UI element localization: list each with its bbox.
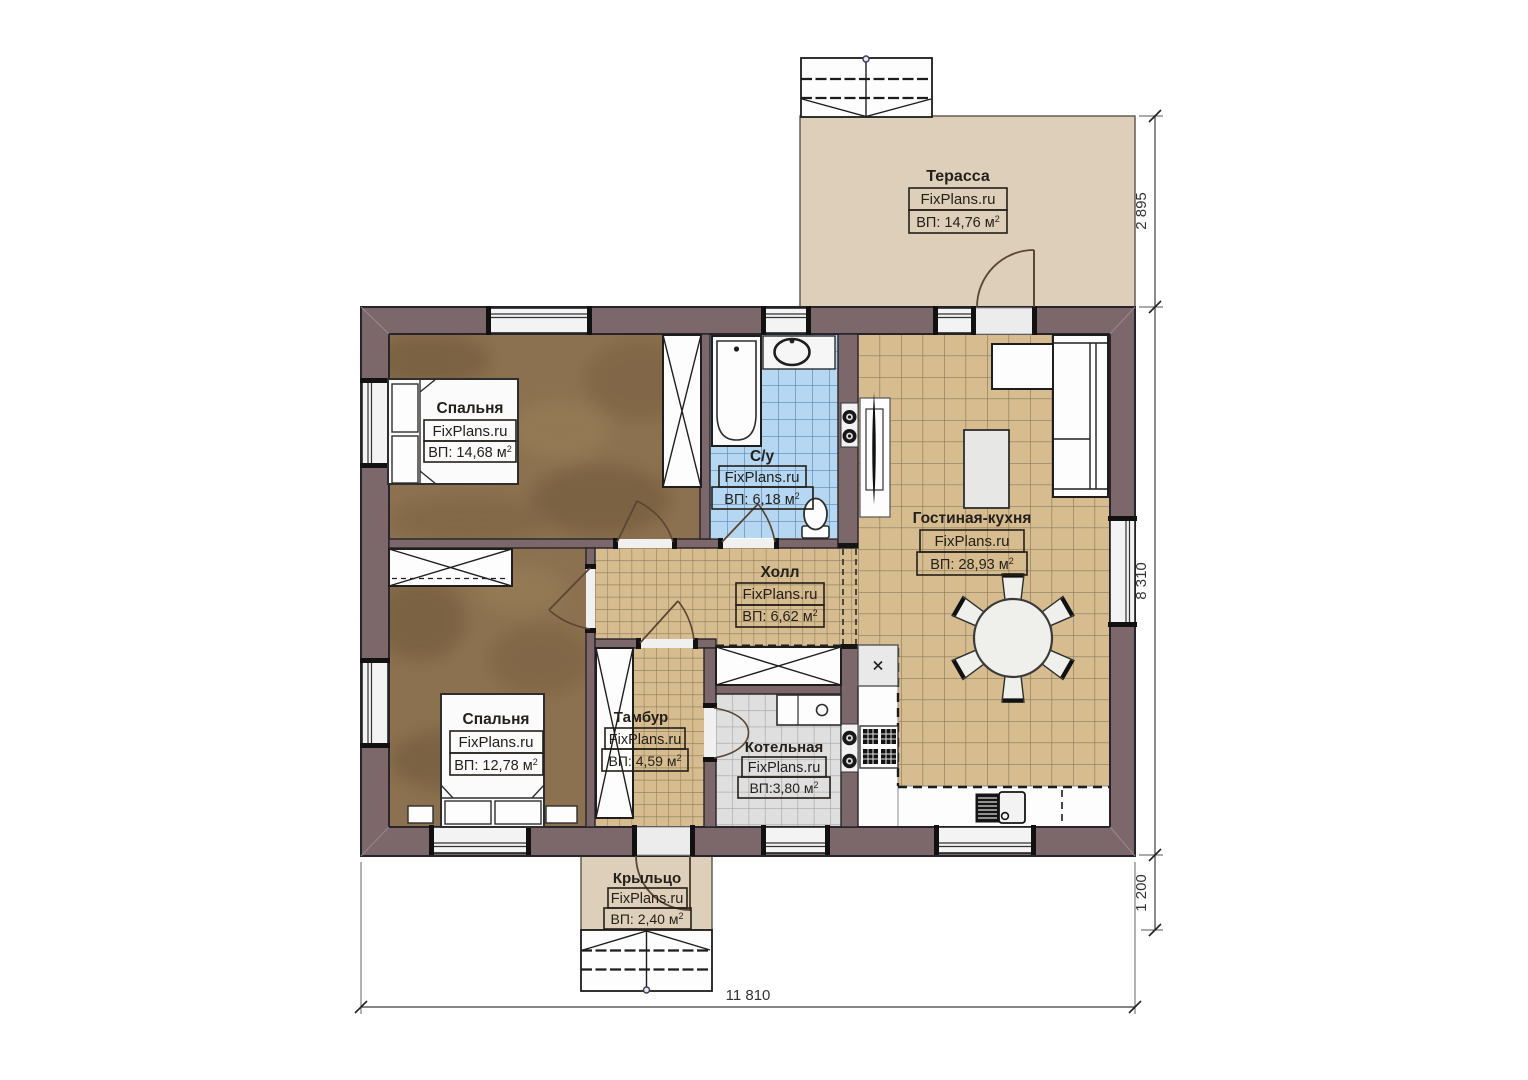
svg-text:2 895: 2 895 xyxy=(1133,192,1150,230)
svg-text:8 310: 8 310 xyxy=(1133,562,1150,600)
svg-text:С/у: С/у xyxy=(750,448,775,465)
svg-text:Спальня: Спальня xyxy=(463,711,530,728)
svg-text:Котельная: Котельная xyxy=(745,739,824,756)
svg-text:FixPlans.ru: FixPlans.ru xyxy=(934,533,1009,550)
svg-text:FixPlans.ru: FixPlans.ru xyxy=(748,760,821,776)
svg-text:ВП: 6,62 м2: ВП: 6,62 м2 xyxy=(742,608,817,625)
svg-text:ВП: 6,18 м2: ВП: 6,18 м2 xyxy=(724,491,799,508)
svg-text:ВП: 12,78 м2: ВП: 12,78 м2 xyxy=(454,757,537,774)
svg-text:Холл: Холл xyxy=(761,564,800,581)
svg-text:ВП: 4,59 м2: ВП: 4,59 м2 xyxy=(609,753,682,769)
svg-text:FixPlans.ru: FixPlans.ru xyxy=(724,469,799,486)
svg-text:Спальня: Спальня xyxy=(437,400,504,417)
svg-text:FixPlans.ru: FixPlans.ru xyxy=(432,423,507,440)
svg-text:ВП: 14,76 м2: ВП: 14,76 м2 xyxy=(916,214,999,231)
svg-text:FixPlans.ru: FixPlans.ru xyxy=(458,734,533,751)
svg-text:1 200: 1 200 xyxy=(1133,874,1150,912)
svg-text:11 810: 11 810 xyxy=(726,987,771,1004)
svg-text:Гостиная-кухня: Гостиная-кухня xyxy=(913,510,1032,527)
svg-text:FixPlans.ru: FixPlans.ru xyxy=(611,891,684,907)
svg-text:ВП: 14,68 м2: ВП: 14,68 м2 xyxy=(428,444,511,461)
svg-text:ВП: 28,93 м2: ВП: 28,93 м2 xyxy=(930,556,1013,573)
svg-text:FixPlans.ru: FixPlans.ru xyxy=(742,586,817,603)
svg-text:Тамбур: Тамбур xyxy=(614,709,668,726)
svg-text:FixPlans.ru: FixPlans.ru xyxy=(609,732,682,748)
svg-text:Крыльцо: Крыльцо xyxy=(613,870,681,887)
svg-text:ВП: 2,40 м2: ВП: 2,40 м2 xyxy=(611,911,684,927)
svg-text:ВП:3,80 м2: ВП:3,80 м2 xyxy=(749,780,818,796)
svg-text:FixPlans.ru: FixPlans.ru xyxy=(920,191,995,208)
svg-text:Терасса: Терасса xyxy=(926,168,990,185)
